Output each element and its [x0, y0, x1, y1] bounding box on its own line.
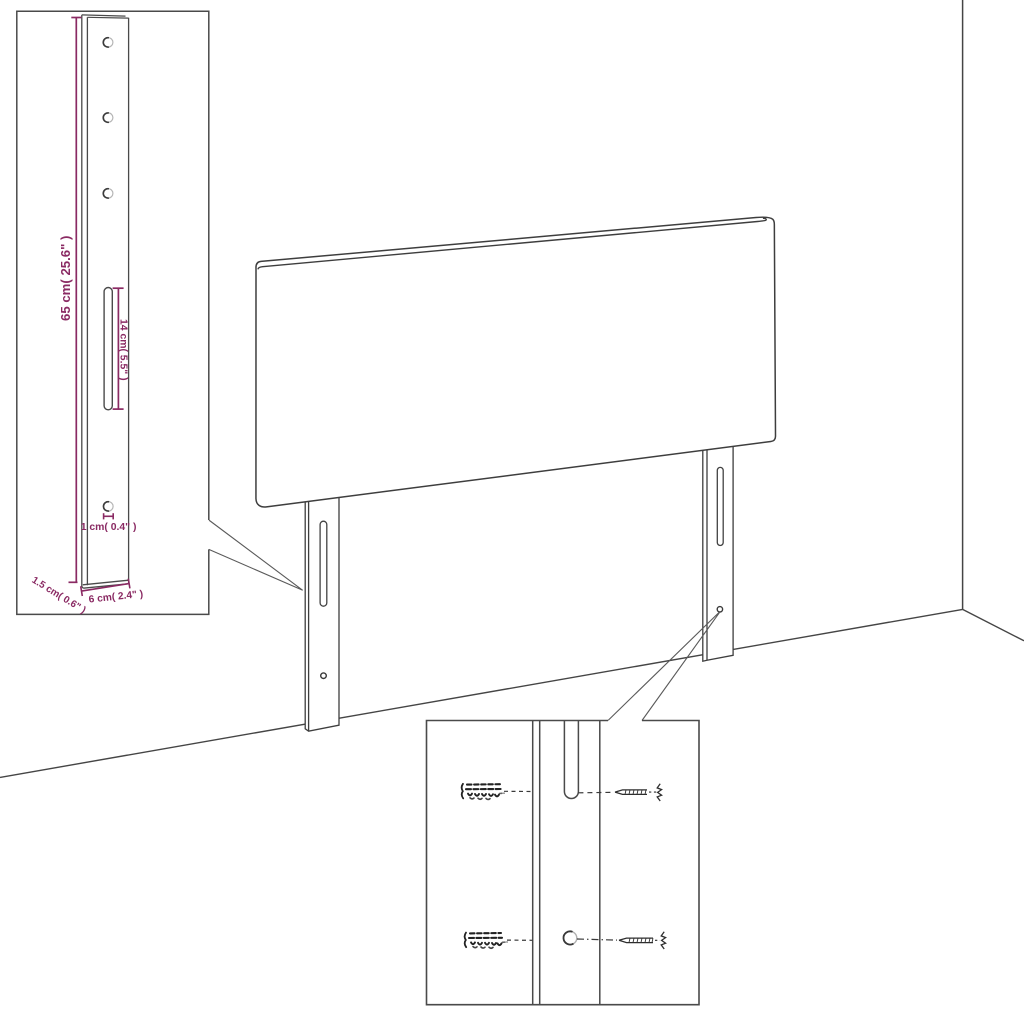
- svg-text:14 cm( 5.5" ): 14 cm( 5.5" ): [118, 319, 129, 381]
- svg-text:65 cm( 25.6" ): 65 cm( 25.6" ): [58, 236, 73, 321]
- svg-text:1 cm( 0.4" ): 1 cm( 0.4" ): [81, 522, 137, 533]
